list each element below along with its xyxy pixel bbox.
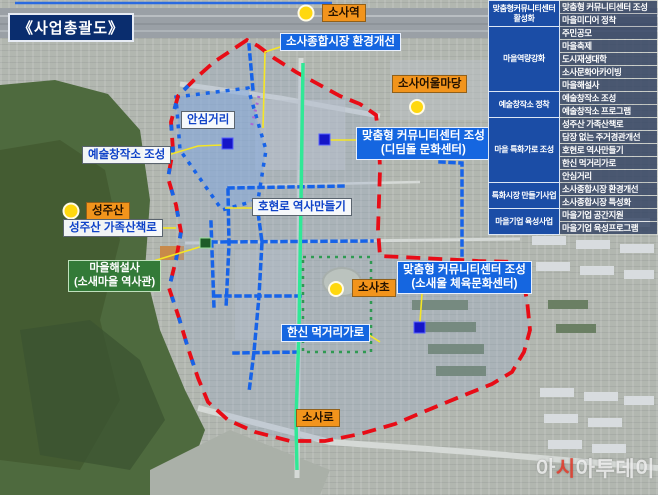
label-seongjusan: 성주산 — [86, 202, 130, 220]
village-storyteller-marker-icon — [200, 238, 211, 248]
legend-item: 소사종합시장 환경개선 — [560, 183, 658, 196]
sosa-station-marker-icon — [299, 6, 314, 21]
label-market-improvement: 소사종합시장 환경개선 — [280, 33, 401, 51]
label-ansim-street: 안심거리 — [181, 111, 235, 129]
label-line: (소새울 체육문화센터) — [411, 277, 517, 291]
page-title: 《사업총괄도》 — [8, 13, 134, 42]
legend-table: 맞춤형커뮤니티센터 활성화맞춤형 커뮤니티센터 조성마을미디어 정착마을역량강화… — [488, 0, 658, 235]
legend-item: 담장 없는 주거경관개선 — [560, 131, 658, 144]
label-sosa-station: 소사역 — [322, 4, 366, 22]
label-seongjusan-family-trail: 성주산 가족산책로 — [63, 219, 163, 237]
watermark-part: 아 — [536, 458, 556, 481]
seongjusan-marker-icon — [64, 204, 79, 219]
label-village-storyteller: 마을해설사 (소새마을 역사관) — [68, 260, 161, 292]
legend-category: 특화시장 만들기사업 — [489, 183, 560, 209]
legend-item: 안심거리 — [560, 170, 658, 183]
legend-category: 마을 특화가로 조성 — [489, 118, 560, 183]
watermark-part-red: 시 — [556, 458, 576, 481]
legend-item: 마을축제 — [560, 40, 658, 53]
label-sosa-road: 소사로 — [296, 409, 340, 427]
legend-category: 마을기업 육성사업 — [489, 209, 560, 235]
legend-item: 마을기업 공간지원 — [560, 209, 658, 222]
watermark-part: 아투데이 — [576, 458, 655, 481]
legend-item: 예술창작소 프로그램 — [560, 105, 658, 118]
legend-item: 성주산 가족산책로 — [560, 118, 658, 131]
legend-category: 예술창작소 정착 — [489, 92, 560, 118]
label-community-center-sosaeul: 맞춤형 커뮤니티센터 조성 (소새울 체육문화센터) — [397, 261, 532, 294]
label-line: 마을해설사 — [89, 262, 140, 276]
legend-item: 주민공모 — [560, 27, 658, 40]
sosa-eoul-madang-marker-icon — [410, 100, 424, 114]
legend-item: 맞춤형 커뮤니티센터 조성 — [560, 1, 658, 14]
legend-item: 소사종합시장 특성화 — [560, 196, 658, 209]
legend-row: 마을역량강화주민공모 — [489, 27, 658, 40]
legend-row: 마을기업 육성사업마을기업 공간지원 — [489, 209, 658, 222]
legend-item: 호현로 역사만들기 — [560, 144, 658, 157]
legend-row: 마을 특화가로 조성성주산 가족산책로 — [489, 118, 658, 131]
sosaeul-center-marker-icon — [414, 322, 425, 333]
didimdol-center-marker-icon — [319, 134, 330, 145]
label-art-studio-creation: 예술창작소 조성 — [82, 146, 171, 164]
legend-item: 마을기업 육성프로그램 — [560, 222, 658, 235]
label-hohyeonro-history: 호현로 역사만들기 — [252, 198, 352, 216]
legend-item: 마을해설사 — [560, 79, 658, 92]
label-sosa-elementary: 소사초 — [352, 279, 396, 297]
legend-row: 특화시장 만들기사업소사종합시장 환경개선 — [489, 183, 658, 196]
legend-item: 마을미디어 정착 — [560, 14, 658, 27]
legend-table-body: 맞춤형커뮤니티센터 활성화맞춤형 커뮤니티센터 조성마을미디어 정착마을역량강화… — [489, 1, 658, 235]
label-hanshin-food-street: 한신 먹거리가로 — [281, 324, 370, 342]
legend-item: 한신 먹거리가로 — [560, 157, 658, 170]
legend-item: 소사문화아카이빙 — [560, 66, 658, 79]
label-line: 맞춤형 커뮤니티센터 조성 — [403, 263, 526, 277]
legend-row: 맞춤형커뮤니티센터 활성화맞춤형 커뮤니티센터 조성 — [489, 1, 658, 14]
label-community-center-didimdol: 맞춤형 커뮤니티센터 조성 (디딤돌 문화센터) — [356, 127, 491, 160]
watermark-asia-today: 아시아투데이 — [536, 453, 655, 483]
legend-item: 도시재생대학 — [560, 53, 658, 66]
legend-item: 예술창작소 조성 — [560, 92, 658, 105]
art-studio-marker-icon — [222, 138, 233, 149]
legend-category: 마을역량강화 — [489, 27, 560, 92]
sosa-elementary-marker-icon — [329, 282, 343, 296]
label-line: (소새마을 역사관) — [74, 276, 155, 290]
label-line: 맞춤형 커뮤니티센터 조성 — [362, 129, 485, 143]
label-sosa-eoul-madang: 소사어울마당 — [392, 75, 467, 93]
legend-row: 예술창작소 정착예술창작소 조성 — [489, 92, 658, 105]
project-overview-map: 《사업총괄도》 소사역 소사종합시장 환경개선 소사어울마당 안심거리 예술창작… — [0, 0, 658, 495]
legend-category: 맞춤형커뮤니티센터 활성화 — [489, 1, 560, 27]
label-line: (디딤돌 문화센터) — [381, 143, 466, 157]
